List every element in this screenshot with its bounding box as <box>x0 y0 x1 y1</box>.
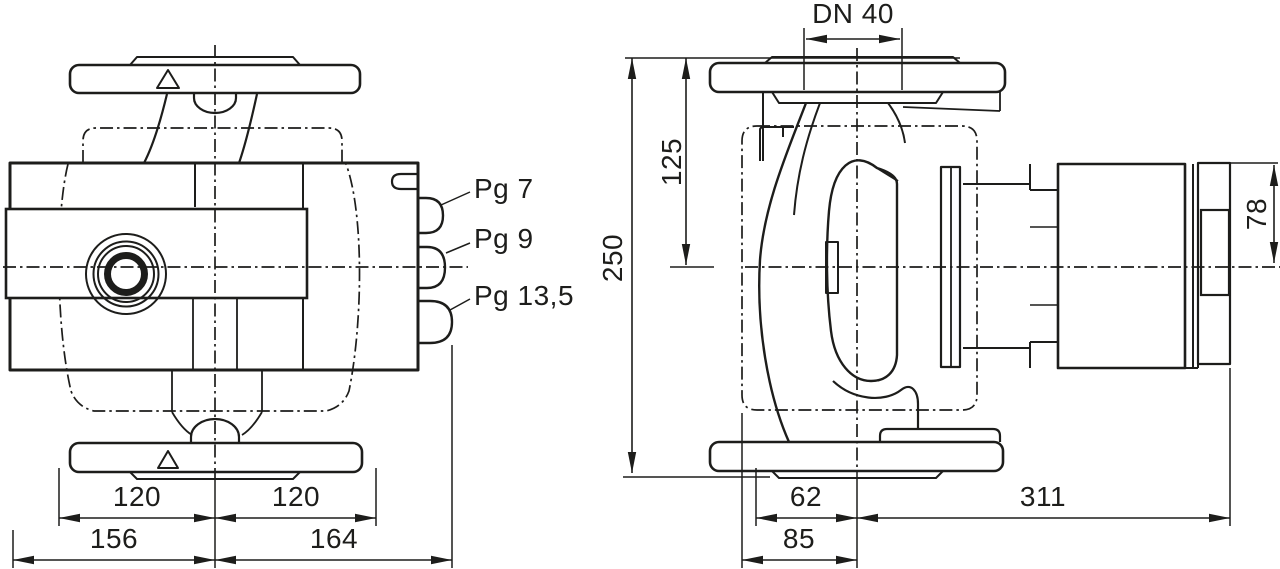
side-view <box>623 28 1280 568</box>
dim-156-label: 156 <box>90 523 138 554</box>
side-lower-plate-wedge <box>903 92 1000 111</box>
dim-85-label: 85 <box>783 523 815 554</box>
dim-62: 62 <box>756 481 857 522</box>
front-lower-neck-lines <box>172 370 262 435</box>
dim-78: 78 <box>1241 165 1278 263</box>
front-bottom-flange <box>70 443 362 472</box>
gland-label-pg9: Pg 9 <box>474 223 534 254</box>
dim-311: 311 <box>857 481 1230 522</box>
cable-gland-pg135 <box>418 301 452 343</box>
dim-dn40-label: DN 40 <box>812 0 894 29</box>
dim-164: 164 <box>215 523 452 564</box>
side-neck-curve-right <box>888 103 905 143</box>
volute-inner-curve <box>794 103 820 215</box>
dim-250-label: 250 <box>597 234 628 282</box>
terminal-ear-tab <box>392 174 418 189</box>
dim-311-label: 311 <box>1020 481 1066 512</box>
terminal-window <box>1201 210 1229 295</box>
front-bottom-flow-triangle <box>158 451 178 468</box>
dim-125-label: 125 <box>656 138 687 186</box>
cable-gland-pg7 <box>418 198 443 233</box>
volute-outer-curve <box>759 103 806 442</box>
pump-dimensional-drawing: Pg 7 Pg 9 Pg 13,5 <box>0 0 1280 569</box>
motor-block <box>1058 164 1185 368</box>
gland-leader-lines <box>441 192 470 310</box>
connector-fin-lines <box>1030 227 1058 305</box>
dim-164-label: 164 <box>310 523 358 554</box>
dim-120-right-label: 120 <box>272 481 320 512</box>
dim-120-left: 120 <box>59 481 215 522</box>
gland-label-pg135: Pg 13,5 <box>474 280 574 311</box>
dim-dn40: DN 40 <box>806 0 900 43</box>
volute-bottom-curve <box>833 381 918 428</box>
dim-250: 250 <box>597 58 636 473</box>
front-dim-extension-lines <box>13 345 452 568</box>
pump-housing-notch <box>877 168 898 181</box>
dim-120-left-label: 120 <box>113 481 161 512</box>
front-top-flow-triangle <box>157 70 179 88</box>
motor-end-plates <box>1185 164 1198 368</box>
dim-85: 85 <box>742 523 857 564</box>
gland-label-pg7: Pg 7 <box>474 173 534 204</box>
dim-125: 125 <box>656 58 690 265</box>
dim-156: 156 <box>13 523 215 564</box>
foot-bracket <box>880 429 1000 442</box>
front-silhouette-upper <box>83 128 342 163</box>
dim-78-label: 78 <box>1241 198 1272 230</box>
dim-62-label: 62 <box>790 481 822 512</box>
dim-120-right: 120 <box>215 481 376 522</box>
drawing-canvas: Pg 7 Pg 9 Pg 13,5 <box>0 0 1280 569</box>
